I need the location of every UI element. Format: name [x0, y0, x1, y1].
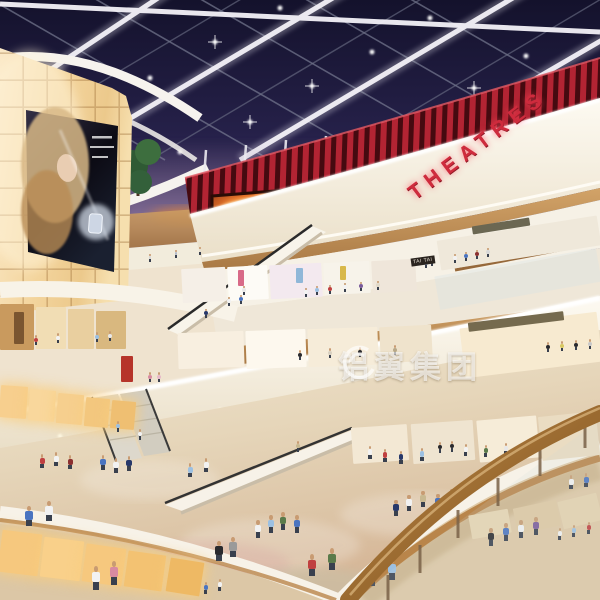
mall-atrium-rendering: THEATRES TAI TAI 铝翼集团	[0, 0, 600, 600]
foreground-handrail	[0, 0, 600, 600]
